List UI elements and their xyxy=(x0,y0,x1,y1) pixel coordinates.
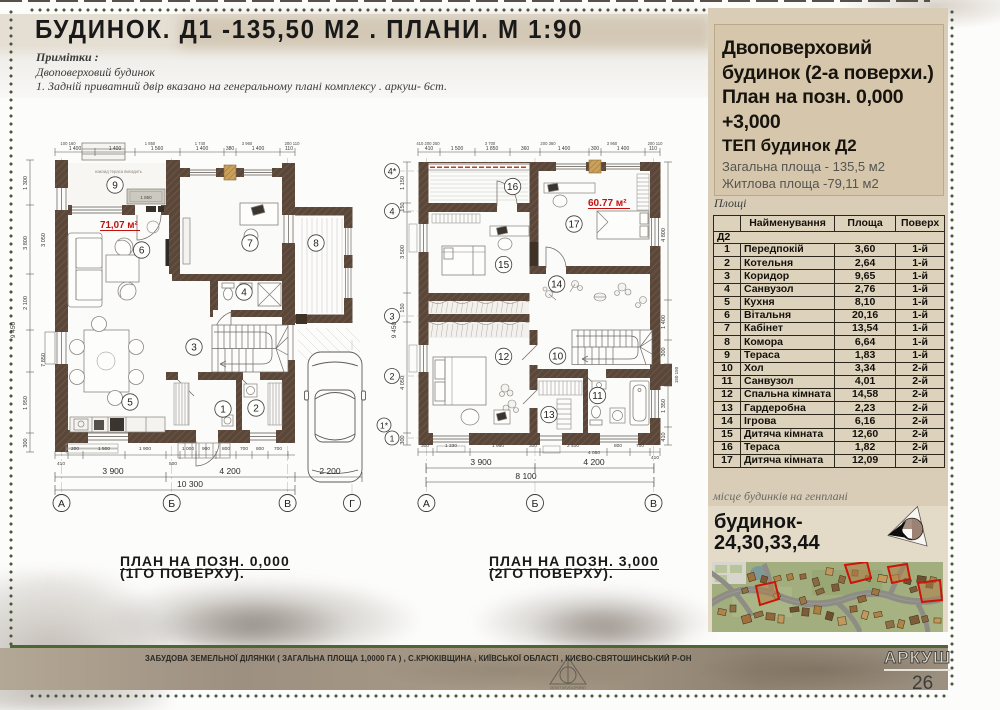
svg-text:410: 410 xyxy=(661,432,667,441)
svg-text:1 400: 1 400 xyxy=(661,315,667,329)
svg-text:7: 7 xyxy=(247,239,253,250)
svg-text:16: 16 xyxy=(507,182,519,193)
svg-text:1 900: 1 900 xyxy=(139,446,151,452)
svg-text:1 350: 1 350 xyxy=(661,399,667,413)
svg-text:300: 300 xyxy=(591,146,600,152)
svg-text:1 560: 1 560 xyxy=(151,146,164,152)
svg-text:1 950: 1 950 xyxy=(492,443,504,449)
svg-text:3 900: 3 900 xyxy=(102,466,124,476)
svg-text:накоид тераса виходить: накоид тераса виходить xyxy=(95,169,143,174)
svg-text:1 950: 1 950 xyxy=(23,396,29,410)
svg-text:Б: Б xyxy=(168,498,175,510)
svg-text:300: 300 xyxy=(23,438,29,447)
svg-text:7 850: 7 850 xyxy=(41,353,47,367)
svg-text:10: 10 xyxy=(552,352,564,363)
svg-text:700: 700 xyxy=(274,446,282,452)
svg-text:1 400: 1 400 xyxy=(69,146,82,152)
svg-text:1: 1 xyxy=(220,405,226,416)
svg-text:60.77 м²: 60.77 м² xyxy=(588,198,627,209)
svg-text:4 800: 4 800 xyxy=(661,228,667,242)
svg-text:500: 500 xyxy=(169,461,177,467)
svg-text:4 050: 4 050 xyxy=(400,376,406,390)
svg-text:110: 110 xyxy=(649,146,657,152)
svg-text:300: 300 xyxy=(400,435,406,444)
svg-text:1 150: 1 150 xyxy=(400,176,406,190)
svg-text:1*: 1* xyxy=(380,421,389,431)
svg-text:1 500: 1 500 xyxy=(451,146,464,152)
svg-text:110: 110 xyxy=(285,146,293,152)
svg-text:17: 17 xyxy=(568,220,580,231)
svg-text:Б: Б xyxy=(532,498,539,510)
svg-text:4*: 4* xyxy=(388,167,397,177)
svg-text:700: 700 xyxy=(636,443,644,449)
svg-text:4: 4 xyxy=(241,288,247,299)
svg-text:10 300: 10 300 xyxy=(177,479,203,489)
svg-text:300: 300 xyxy=(421,443,429,449)
svg-text:Г: Г xyxy=(349,498,355,510)
svg-text:1 400: 1 400 xyxy=(196,146,209,152)
svg-text:3 050: 3 050 xyxy=(41,233,47,247)
svg-text:9 450: 9 450 xyxy=(10,321,17,338)
svg-text:5: 5 xyxy=(127,398,133,409)
svg-text:3 800: 3 800 xyxy=(23,236,29,250)
svg-text:800: 800 xyxy=(222,446,230,452)
svg-text:800: 800 xyxy=(614,443,622,449)
svg-text:200: 200 xyxy=(71,446,79,452)
svg-text:360: 360 xyxy=(521,146,530,152)
svg-text:410: 410 xyxy=(57,461,65,467)
svg-text:1 400: 1 400 xyxy=(109,146,122,152)
svg-text:410: 410 xyxy=(425,146,434,152)
svg-text:380: 380 xyxy=(226,146,235,152)
svg-text:1 400: 1 400 xyxy=(252,146,265,152)
svg-text:В: В xyxy=(284,498,291,510)
svg-text:15: 15 xyxy=(498,260,510,271)
svg-text:1 850: 1 850 xyxy=(140,195,152,200)
svg-text:900: 900 xyxy=(202,446,210,452)
svg-text:12: 12 xyxy=(498,352,510,363)
svg-text:9: 9 xyxy=(112,181,118,192)
svg-text:А: А xyxy=(58,498,65,510)
svg-text:8: 8 xyxy=(313,239,319,250)
svg-text:6: 6 xyxy=(139,246,145,257)
svg-text:1 400: 1 400 xyxy=(617,146,630,152)
svg-text:4 200: 4 200 xyxy=(583,457,605,467)
svg-text:3 900: 3 900 xyxy=(470,457,492,467)
svg-text:8 100: 8 100 xyxy=(515,471,537,481)
svg-text:1 850: 1 850 xyxy=(486,146,499,152)
svg-text:700: 700 xyxy=(240,446,248,452)
svg-text:3: 3 xyxy=(191,343,197,354)
svg-text:1 000: 1 000 xyxy=(182,446,194,452)
svg-text:200 360: 200 360 xyxy=(540,141,556,146)
svg-text:2: 2 xyxy=(253,404,259,415)
svg-text:71,07 м²: 71,07 м² xyxy=(100,220,138,231)
svg-text:2 100: 2 100 xyxy=(23,296,29,310)
svg-text:300: 300 xyxy=(529,443,537,449)
svg-text:1 500: 1 500 xyxy=(98,446,110,452)
svg-text:800: 800 xyxy=(256,446,264,452)
svg-text:В: В xyxy=(650,498,657,510)
svg-text:1 330: 1 330 xyxy=(445,443,457,449)
svg-text:14: 14 xyxy=(551,280,563,291)
svg-text:410: 410 xyxy=(651,455,659,461)
svg-text:13: 13 xyxy=(543,410,555,421)
svg-text:11: 11 xyxy=(592,391,603,402)
svg-text:300: 300 xyxy=(661,347,667,356)
svg-text:150 150: 150 150 xyxy=(674,366,679,383)
svg-text:9 450: 9 450 xyxy=(391,321,398,338)
svg-text:150: 150 xyxy=(400,303,406,312)
svg-text:2 400: 2 400 xyxy=(567,443,579,449)
svg-text:3 500: 3 500 xyxy=(400,245,406,259)
svg-text:4 050: 4 050 xyxy=(588,450,600,456)
svg-text:4 200: 4 200 xyxy=(219,466,241,476)
svg-text:2 200: 2 200 xyxy=(319,466,341,476)
svg-text:2: 2 xyxy=(389,372,394,382)
svg-text:А: А xyxy=(423,498,430,510)
svg-text:3: 3 xyxy=(389,312,394,322)
svg-text:1 400: 1 400 xyxy=(558,146,571,152)
svg-text:150: 150 xyxy=(400,202,406,211)
svg-text:4: 4 xyxy=(389,207,394,217)
svg-text:1: 1 xyxy=(390,434,395,444)
svg-text:1 300: 1 300 xyxy=(23,176,29,190)
